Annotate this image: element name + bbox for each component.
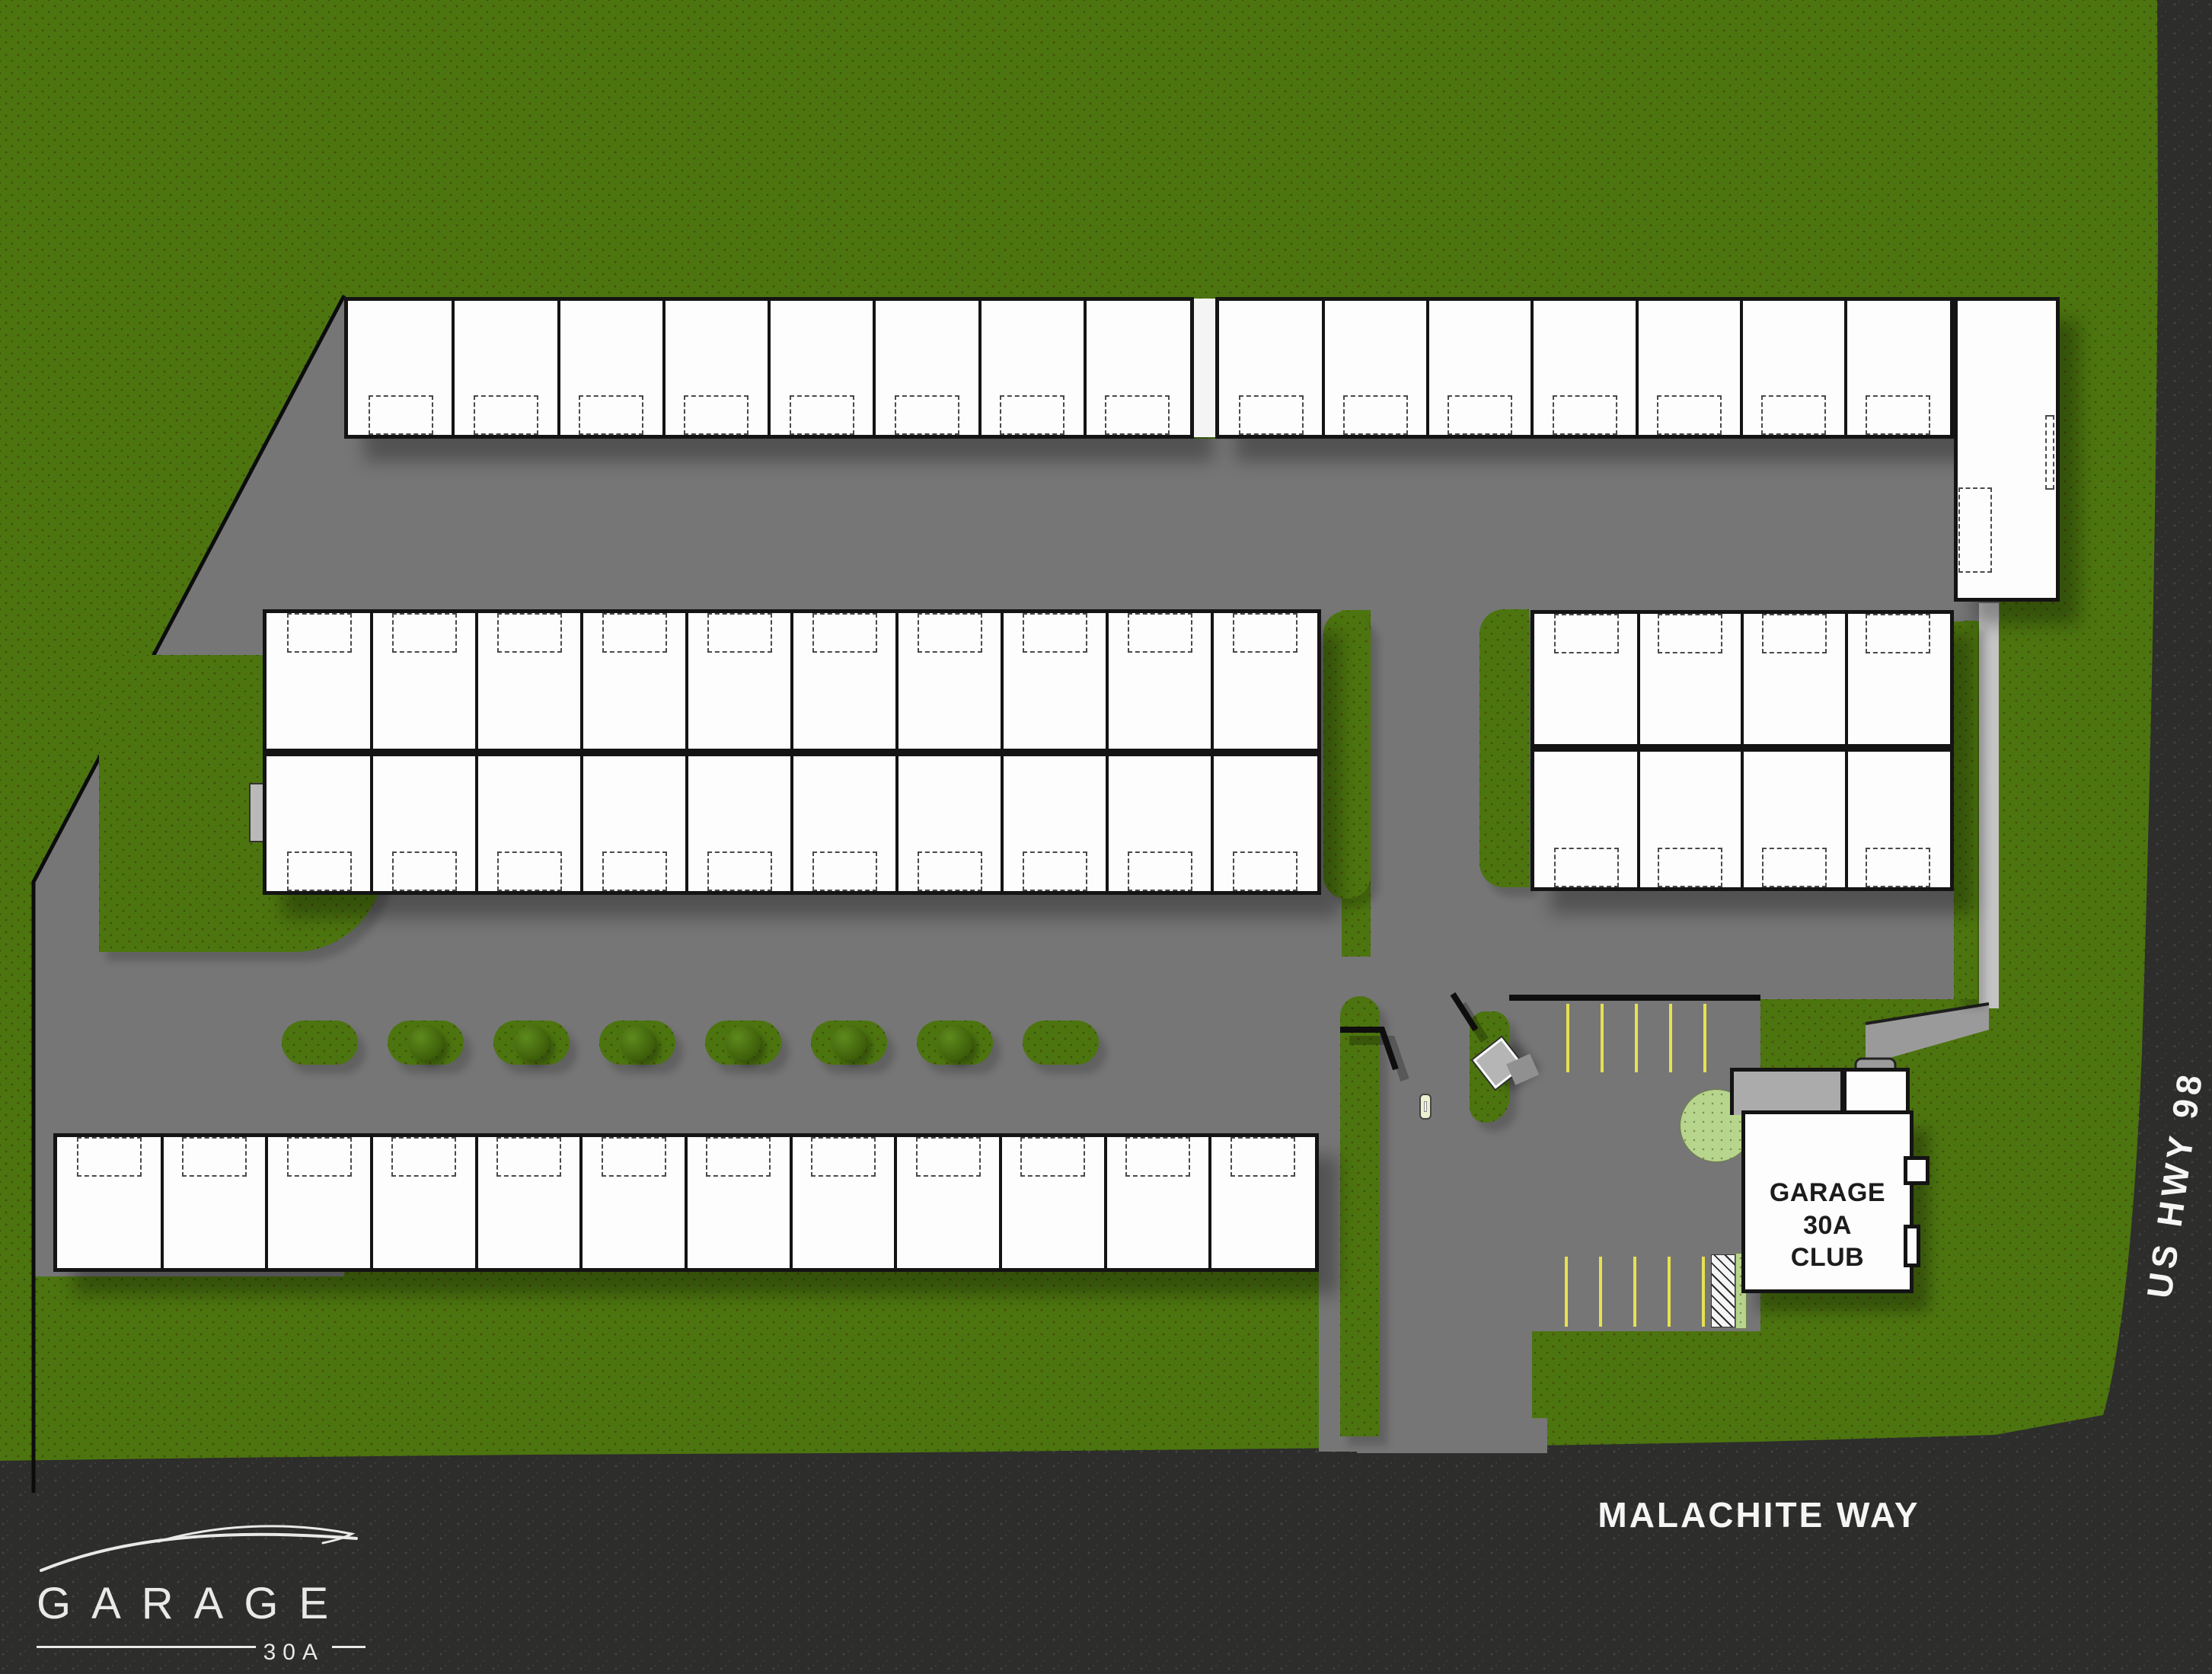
garage-door xyxy=(895,395,959,435)
club-patio xyxy=(1730,1068,1844,1115)
garage-door xyxy=(182,1137,247,1177)
garage-door xyxy=(707,613,772,653)
verge-mid-gap xyxy=(1323,611,1371,899)
club-label-line2: CLUB xyxy=(1741,1241,1914,1274)
unit-wall xyxy=(265,1137,268,1268)
parking-stripe xyxy=(1633,1257,1636,1327)
unit-wall xyxy=(580,613,583,749)
landscape-pill xyxy=(811,1021,887,1065)
garage-door xyxy=(2045,415,2054,490)
logo-wordmark: GARAGE xyxy=(37,1582,372,1626)
garage-door xyxy=(790,395,854,435)
mid-block-north xyxy=(263,609,1321,752)
logo-sub-30a: 30A xyxy=(256,1640,332,1666)
top-row-west xyxy=(344,297,1194,439)
parking-stripe xyxy=(1703,1004,1706,1072)
garage-door xyxy=(287,1137,352,1177)
garage-door xyxy=(706,1137,771,1177)
garage-door xyxy=(916,1137,981,1177)
unit-wall xyxy=(1636,301,1639,435)
garage-door xyxy=(602,1137,666,1177)
garage-door xyxy=(497,851,562,891)
unit-wall xyxy=(894,1137,897,1268)
garage-door xyxy=(812,613,877,653)
mid-block-south xyxy=(263,752,1321,895)
unit-wall xyxy=(895,756,899,891)
tree-icon xyxy=(937,1025,972,1060)
parking-stripe xyxy=(1566,1004,1569,1072)
parking-stripe xyxy=(1565,1257,1568,1327)
garage-door xyxy=(1958,487,1992,573)
unit-wall xyxy=(475,1137,478,1268)
verge-entry-west xyxy=(1340,996,1380,1436)
garage-door xyxy=(1658,848,1722,887)
unit-wall xyxy=(1637,614,1640,744)
garage-door xyxy=(602,851,667,891)
unit-wall xyxy=(1084,301,1087,435)
garage-door xyxy=(1000,395,1065,435)
parking-stripe xyxy=(1668,1257,1671,1327)
unit-wall xyxy=(370,756,373,891)
garage-door xyxy=(1230,1137,1295,1177)
unit-wall xyxy=(662,301,666,435)
unit-wall xyxy=(1104,1137,1107,1268)
unit-wall xyxy=(452,301,455,435)
unit-wall xyxy=(790,756,793,891)
parking-stripe xyxy=(1601,1004,1604,1072)
unit-wall xyxy=(1741,614,1744,744)
garage-door xyxy=(1866,614,1930,653)
garage-door xyxy=(918,851,982,891)
unit-wall xyxy=(370,613,373,749)
verge-east-block xyxy=(1479,609,1529,887)
unit-wall xyxy=(1637,752,1640,887)
top-row-east xyxy=(1215,297,1954,439)
parking-stripe xyxy=(1702,1257,1705,1327)
landscape-pill xyxy=(705,1021,781,1065)
garage-door xyxy=(392,851,457,891)
unit-wall xyxy=(790,613,793,749)
unit-wall xyxy=(685,613,688,749)
logo-rule-left xyxy=(37,1646,256,1648)
crosswalk-hatch xyxy=(1711,1254,1735,1327)
landscape-pill xyxy=(493,1021,570,1065)
unit-wall xyxy=(1531,301,1534,435)
east-block-north xyxy=(1531,610,1954,748)
garage-door xyxy=(1128,851,1192,891)
unit-wall xyxy=(1426,301,1429,435)
garage-door xyxy=(812,851,877,891)
unit-wall xyxy=(1211,613,1214,749)
street-label-malachite-way: MALACHITE WAY xyxy=(1523,1494,1995,1535)
garage-door xyxy=(1866,848,1930,887)
strip-east-of-block xyxy=(1954,621,1977,999)
garage-door xyxy=(1023,851,1087,891)
club-wing xyxy=(1843,1068,1910,1115)
garage-door xyxy=(496,1137,561,1177)
club-label-line1: GARAGE 30A xyxy=(1741,1177,1914,1241)
landscape-pill xyxy=(388,1021,464,1065)
garage-door xyxy=(1553,395,1617,435)
unit-wall xyxy=(161,1137,164,1268)
unit-wall xyxy=(999,1137,1002,1268)
garage-30a-logo: GARAGE 30A xyxy=(37,1520,372,1660)
unit-wall xyxy=(1106,756,1109,891)
tree-icon xyxy=(726,1025,761,1060)
garage-door xyxy=(1554,848,1619,887)
unit-wall xyxy=(685,756,688,891)
unit-wall xyxy=(370,1137,373,1268)
unit-wall xyxy=(580,756,583,891)
garage-door xyxy=(1343,395,1408,435)
unit-wall xyxy=(873,301,876,435)
garage-door xyxy=(1448,395,1512,435)
unit-wall xyxy=(475,613,478,749)
garage-door xyxy=(579,395,643,435)
landscape-pill xyxy=(917,1021,993,1065)
dumpster-pad xyxy=(249,783,264,842)
unit-wall xyxy=(685,1137,688,1268)
garage-door xyxy=(497,613,562,653)
garage-door xyxy=(918,613,982,653)
garage-door xyxy=(391,1137,456,1177)
unit-wall xyxy=(1106,613,1109,749)
bottom-row xyxy=(53,1133,1319,1272)
garage-door xyxy=(1658,614,1722,653)
garage-door xyxy=(1239,395,1304,435)
garage-door xyxy=(1125,1137,1190,1177)
tree-icon xyxy=(514,1025,549,1060)
unit-wall xyxy=(1845,614,1848,744)
garage-door xyxy=(1233,851,1298,891)
garage-door xyxy=(1128,613,1192,653)
unit-wall xyxy=(1741,752,1744,887)
unit-wall xyxy=(895,613,899,749)
garage-door xyxy=(1233,613,1298,653)
unit-wall xyxy=(475,756,478,891)
site-plan: GARAGE 30A CLUB MALACHITE WAY US HWY 98 … xyxy=(0,0,2212,1674)
car-swoosh-icon xyxy=(37,1520,365,1575)
logo-rule: 30A xyxy=(37,1634,365,1660)
landscape-pill xyxy=(1023,1021,1099,1065)
garage-door xyxy=(1761,395,1826,435)
parking-stripe xyxy=(1669,1004,1672,1072)
parking-stripe xyxy=(1599,1257,1602,1327)
tree-icon xyxy=(408,1025,443,1060)
east-block-south xyxy=(1531,748,1954,891)
unit-wall xyxy=(1844,301,1847,435)
unit-wall xyxy=(1845,752,1848,887)
landscape-pill xyxy=(282,1021,358,1065)
garage-door xyxy=(1762,848,1827,887)
garage-door xyxy=(707,851,772,891)
unit-wall xyxy=(1322,301,1325,435)
logo-rule-right xyxy=(332,1646,365,1648)
unit-wall xyxy=(1208,1137,1211,1268)
garage-door xyxy=(684,395,749,435)
garage-door xyxy=(1020,1137,1085,1177)
unit-wall xyxy=(790,1137,793,1268)
garage-door xyxy=(1657,395,1722,435)
garage-door xyxy=(602,613,667,653)
tree-icon xyxy=(620,1025,655,1060)
garage-door xyxy=(1554,614,1619,653)
unit-wall xyxy=(557,301,560,435)
unit-wall xyxy=(1001,756,1004,891)
unit-wall xyxy=(768,301,771,435)
landscape-pill xyxy=(599,1021,675,1065)
garage-door xyxy=(1105,395,1170,435)
garage-door xyxy=(77,1137,142,1177)
breezeway xyxy=(1194,299,1215,437)
unit-wall xyxy=(579,1137,583,1268)
garage-door xyxy=(287,851,352,891)
garage-door xyxy=(1866,395,1930,435)
garage-door xyxy=(287,613,352,653)
parking-stripe xyxy=(1635,1004,1638,1072)
unit-wall xyxy=(1211,756,1214,891)
garage-door xyxy=(1762,614,1827,653)
garage-door xyxy=(811,1137,876,1177)
garage-door xyxy=(1023,613,1087,653)
entry-keypad xyxy=(1419,1094,1432,1120)
garage-door xyxy=(369,395,433,435)
garage-door xyxy=(392,613,457,653)
tree-icon xyxy=(831,1025,867,1060)
garage-door xyxy=(474,395,538,435)
unit-wall xyxy=(1740,301,1743,435)
unit-wall xyxy=(1001,613,1004,749)
unit-wall xyxy=(978,301,982,435)
club-label: GARAGE 30A CLUB xyxy=(1741,1177,1914,1274)
